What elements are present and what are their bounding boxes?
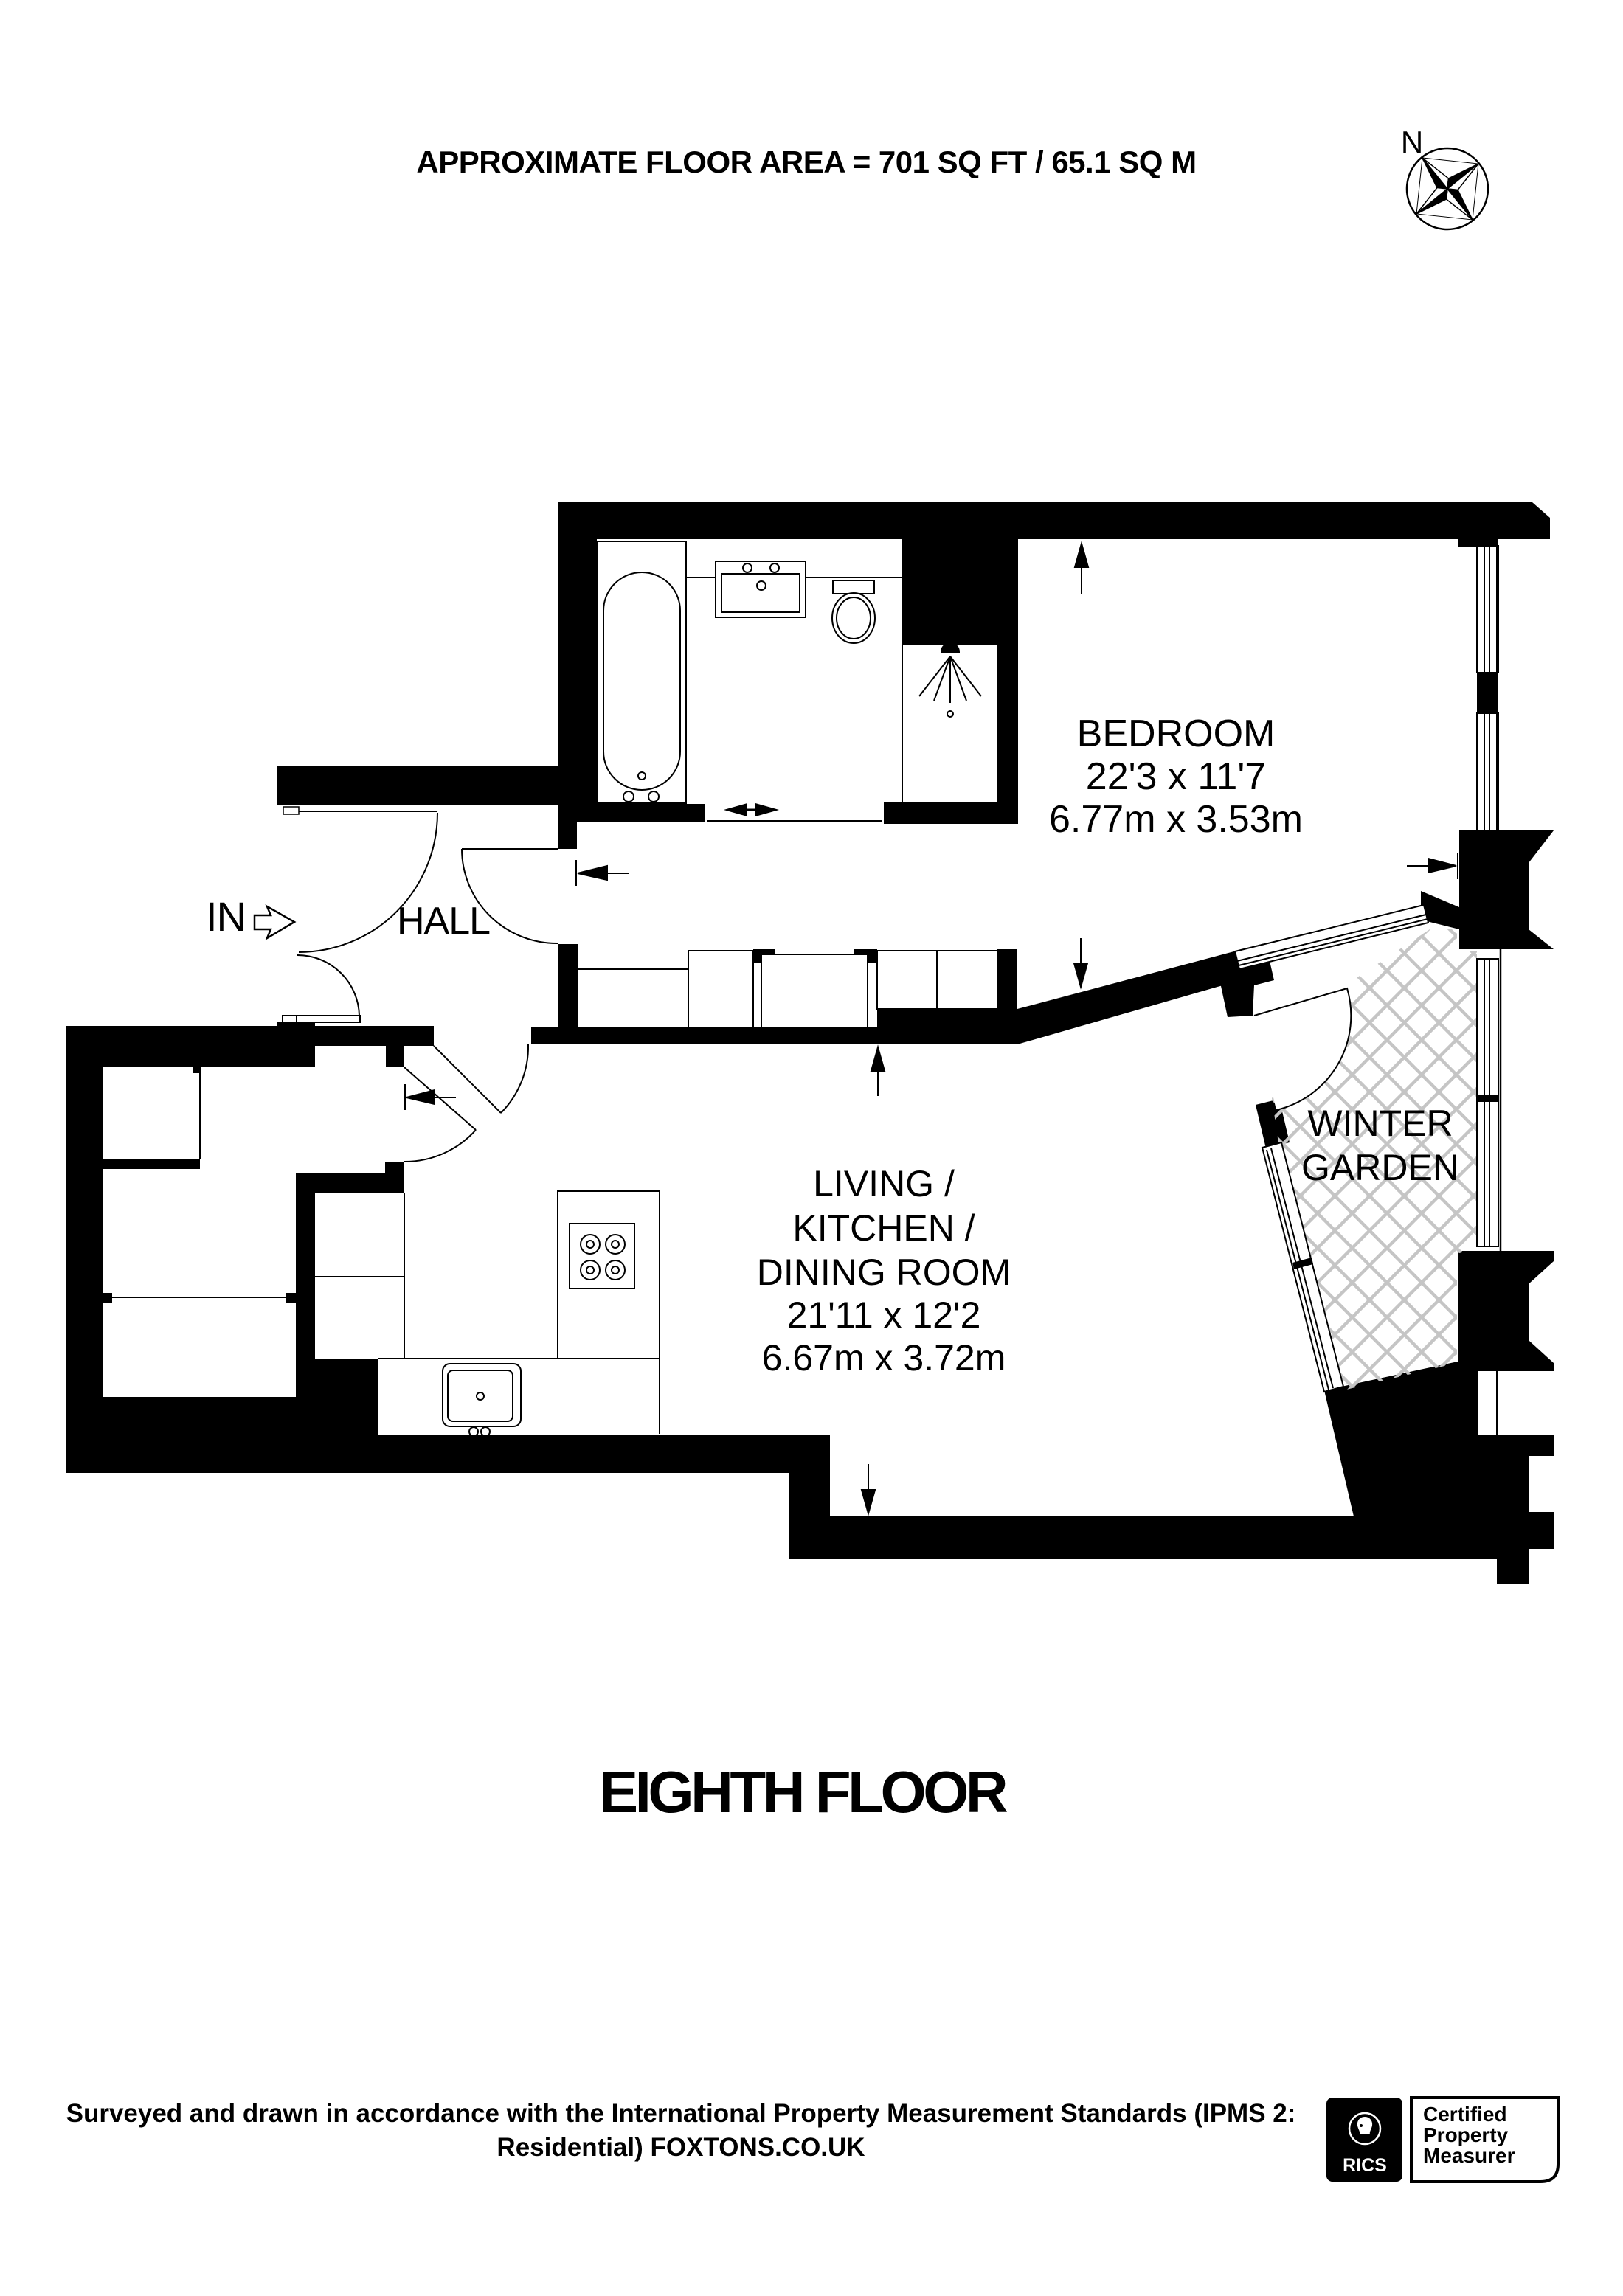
svg-text:Measurer: Measurer	[1423, 2144, 1515, 2167]
svg-text:WINTER: WINTER	[1307, 1103, 1453, 1144]
svg-text:HALL: HALL	[397, 900, 490, 943]
svg-text:Residential) FOXTONS.CO.UK: Residential) FOXTONS.CO.UK	[496, 2133, 865, 2162]
svg-text:BEDROOM: BEDROOM	[1077, 712, 1276, 755]
svg-text:Surveyed and drawn in accordan: Surveyed and drawn in accordance with th…	[66, 2099, 1296, 2128]
svg-text:6.77m x 3.53m: 6.77m x 3.53m	[1049, 798, 1303, 841]
svg-text:N: N	[1401, 125, 1423, 159]
svg-text:DINING ROOM: DINING ROOM	[757, 1252, 1011, 1293]
svg-text:22'3 x 11'7: 22'3 x 11'7	[1086, 755, 1266, 798]
svg-text:6.67m x 3.72m: 6.67m x 3.72m	[762, 1337, 1006, 1378]
svg-text:Property: Property	[1423, 2123, 1509, 2146]
svg-text:21'11 x 12'2: 21'11 x 12'2	[787, 1294, 981, 1336]
svg-text:GARDEN: GARDEN	[1301, 1147, 1459, 1188]
svg-text:LIVING /: LIVING /	[813, 1163, 955, 1204]
svg-text:RICS: RICS	[1343, 2155, 1387, 2176]
svg-text:APPROXIMATE FLOOR AREA = 701 S: APPROXIMATE FLOOR AREA = 701 SQ FT / 65.…	[416, 145, 1196, 179]
svg-text:KITCHEN /: KITCHEN /	[792, 1207, 975, 1249]
svg-text:EIGHTH FLOOR: EIGHTH FLOOR	[599, 1759, 1008, 1825]
svg-text:IN: IN	[206, 893, 246, 940]
svg-text:Certified: Certified	[1423, 2103, 1507, 2126]
